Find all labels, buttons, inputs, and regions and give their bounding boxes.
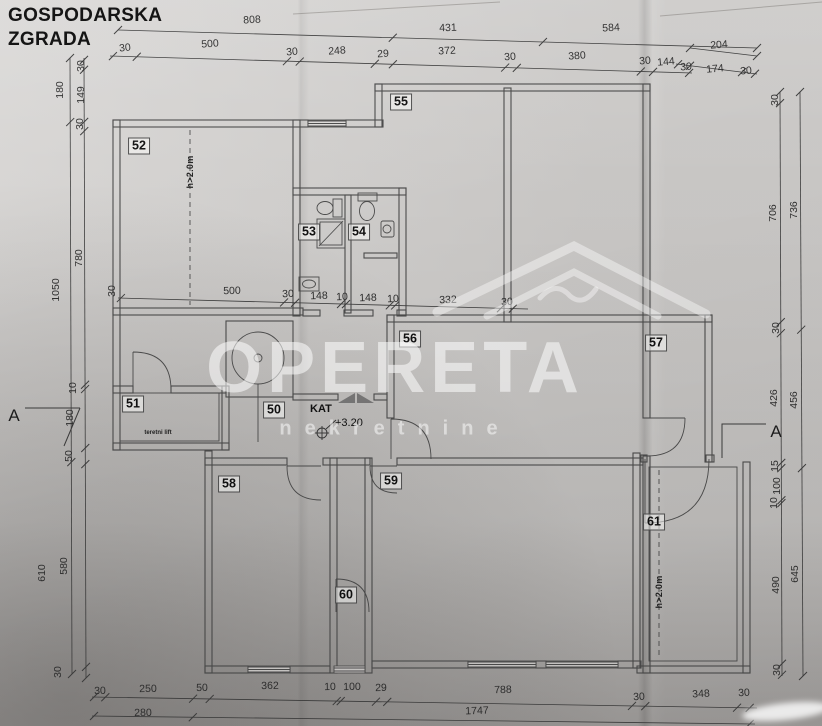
dim-label: 30 (633, 692, 645, 703)
room-number-59: 59 (380, 473, 402, 490)
dim-label: 149 (76, 86, 86, 104)
dim-label: 204 (710, 39, 728, 50)
photographed-floor-plan: { "title": {"line1": "GOSPODARSKA", "lin… (0, 0, 822, 726)
dim-label: 30 (53, 666, 63, 678)
watermark-text: OPERETA (206, 327, 584, 409)
dim-label: 362 (261, 681, 279, 691)
dim-label: 30 (639, 56, 652, 67)
dim-label: 30 (772, 664, 782, 676)
dim-label: 15 (770, 460, 780, 472)
dim-label: 30 (504, 52, 516, 63)
dim-label: 30 (75, 118, 85, 130)
dim-label: 490 (771, 576, 781, 594)
drawing-title: GOSPODARSKA ZGRADA (8, 4, 162, 52)
dim-label: 456 (789, 391, 799, 409)
dim-label: 50 (196, 683, 208, 693)
room-number-60: 60 (335, 587, 357, 604)
dim-label: 736 (789, 201, 799, 219)
dim-label: 10 (324, 682, 336, 692)
section-mark: A (8, 406, 19, 426)
dim-label: 29 (375, 683, 387, 693)
dim-label: 174 (706, 63, 724, 74)
dim-label: 10 (387, 294, 399, 304)
dim-label: 148 (310, 291, 328, 302)
dim-label: 100 (343, 682, 361, 692)
dim-label: 10 (68, 382, 78, 394)
room-number-53: 53 (298, 224, 320, 241)
title-line-2: ZGRADA (8, 28, 162, 52)
room-number-54: 54 (348, 224, 370, 241)
dim-label: 30 (501, 297, 513, 307)
dim-label: 610 (37, 564, 47, 582)
room-number-52: 52 (128, 138, 150, 155)
room-annotation: teretni lift (144, 430, 171, 436)
dim-label: 500 (201, 38, 219, 49)
height-note: h>2.0m (185, 155, 195, 188)
title-line-1: GOSPODARSKA (8, 4, 162, 28)
dim-label: 30 (107, 285, 117, 297)
watermark-subtext: nekretnine (279, 418, 510, 441)
dim-label: 1747 (465, 706, 489, 717)
dim-label: 148 (359, 293, 377, 304)
dim-label: 50 (64, 450, 74, 462)
dim-label: 280 (134, 708, 152, 718)
dim-label: 10 (769, 497, 779, 509)
dim-label: 431 (439, 23, 457, 34)
dim-label: 248 (328, 45, 346, 56)
dim-label: 706 (768, 204, 778, 222)
room-number-51: 51 (122, 396, 144, 413)
dim-label: 30 (740, 66, 753, 77)
dim-label: 30 (738, 688, 750, 699)
room-number-55: 55 (390, 94, 412, 111)
room-number-61: 61 (643, 514, 665, 531)
dim-label: 100 (772, 477, 782, 495)
room-number-58: 58 (218, 476, 240, 493)
dim-label: 580 (59, 557, 69, 575)
dim-label: 30 (282, 289, 294, 299)
dim-label: 10 (336, 292, 348, 302)
dim-label: 29 (377, 49, 389, 60)
dim-label: 332 (439, 295, 457, 306)
dim-label: 584 (602, 23, 620, 34)
dim-label: 426 (769, 389, 779, 407)
dim-label: 1050 (51, 278, 61, 301)
dim-label: 348 (692, 689, 710, 700)
dim-label: 30 (94, 686, 106, 696)
dim-label: 500 (223, 286, 241, 297)
dim-label: 380 (568, 50, 586, 61)
room-number-57: 57 (645, 335, 667, 352)
dim-label: 788 (494, 685, 512, 696)
height-note: h>2.0m (654, 575, 664, 608)
dim-label: 808 (243, 15, 261, 26)
dim-label: 144 (657, 56, 675, 67)
section-mark: A (770, 422, 781, 442)
dim-label: 180 (65, 409, 75, 427)
dim-label: 30 (680, 62, 693, 73)
dim-label: 30 (76, 60, 86, 72)
dim-label: 30 (119, 42, 132, 53)
dim-label: 30 (770, 94, 780, 106)
dim-label: 180 (55, 81, 65, 99)
dim-label: 30 (771, 322, 781, 334)
dim-label: 250 (139, 684, 157, 694)
dim-label: 780 (74, 249, 84, 267)
dim-label: 372 (438, 46, 456, 57)
dim-label: 645 (790, 565, 800, 583)
dim-label: 30 (286, 47, 299, 58)
